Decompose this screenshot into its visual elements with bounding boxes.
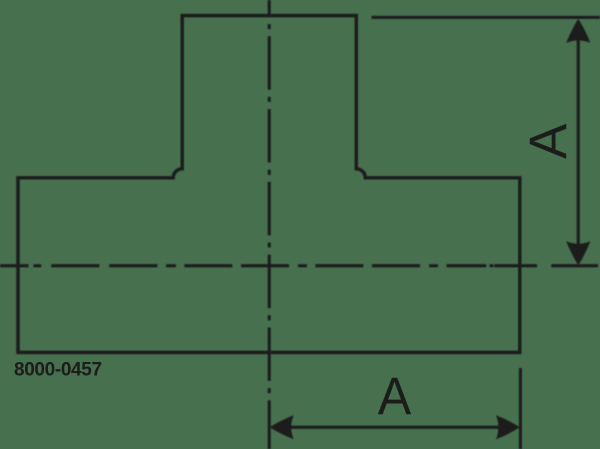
svg-text:A: A <box>378 367 412 426</box>
svg-text:8000-0457: 8000-0457 <box>14 360 102 381</box>
svg-text:A: A <box>519 123 578 159</box>
